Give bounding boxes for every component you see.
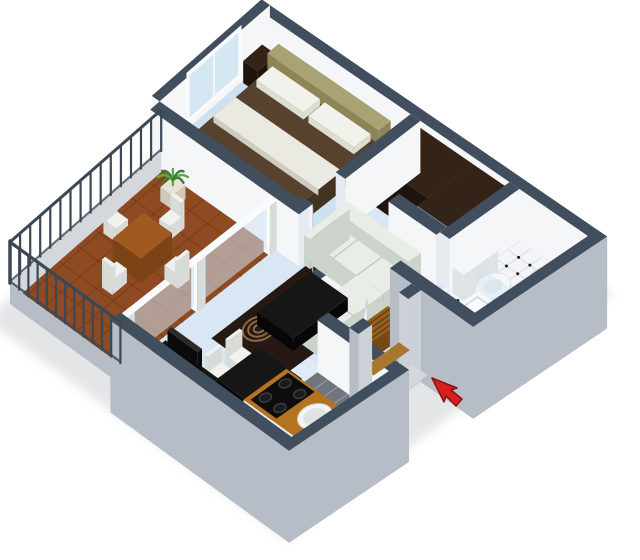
- bedroom-window-mullion: [213, 53, 215, 96]
- balcony-chair-d-back-face-se: [112, 264, 115, 295]
- bath-wall-se-face-sw: [464, 320, 473, 419]
- living-wall-sw-face-se: [289, 443, 300, 543]
- floor-plan-canvas: 3D isometric floor plan of a one-bedroom…: [0, 0, 640, 560]
- balcony-chair-c-back-face-sw: [175, 259, 178, 289]
- floor-plan-stage: 3D isometric floor plan of a one-bedroom…: [0, 0, 640, 560]
- bath-tile-dot: [517, 256, 520, 259]
- bath-tile-dot: [516, 272, 519, 275]
- bath-tile-dot: [505, 265, 508, 268]
- bath-wall-a-face-sw: [440, 232, 450, 291]
- slider-post-1-face-se: [270, 201, 277, 256]
- bath-tile-dot: [528, 264, 531, 267]
- sofa-arm-left-face-sw: [304, 235, 310, 269]
- balcony-chair-b-back-face-se: [181, 200, 184, 231]
